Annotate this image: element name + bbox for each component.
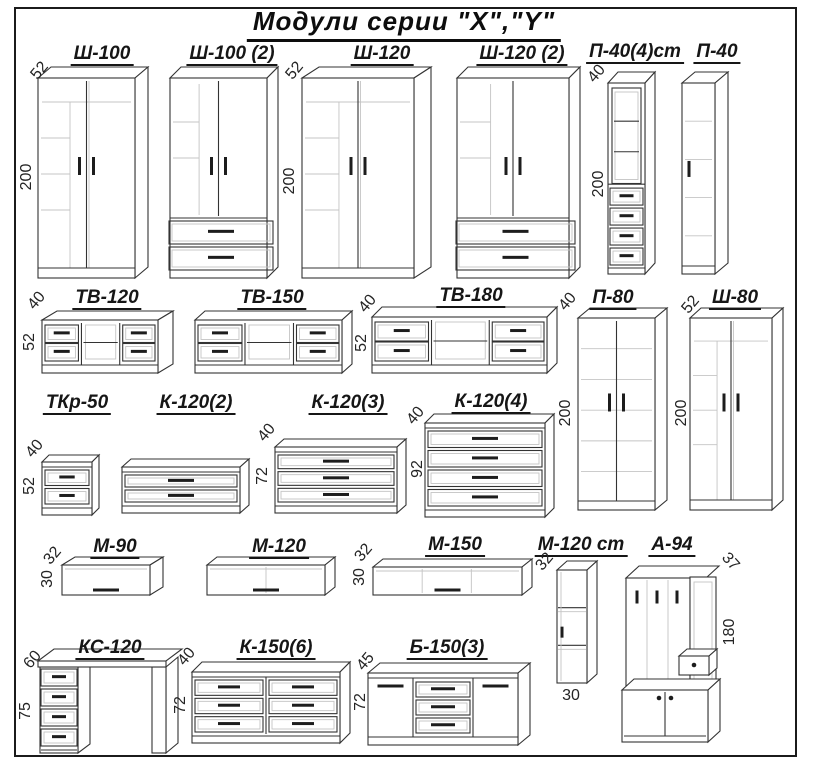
module-label-k-150-6: К-150(6) bbox=[237, 638, 316, 660]
drawing-k-150-6 bbox=[192, 662, 350, 743]
module-label-k-120-4: К-120(4) bbox=[452, 392, 531, 414]
drawing-k-120-2 bbox=[122, 459, 249, 513]
module-label-p-80: П-80 bbox=[589, 288, 636, 310]
dim-height-k-120-4: 92 bbox=[410, 460, 426, 478]
module-label-tkr-50: ТКр-50 bbox=[43, 393, 111, 415]
drawing-sh-120 bbox=[302, 67, 431, 278]
dim-height-k-150-6: 72 bbox=[173, 696, 189, 714]
module-label-k-120-3: К-120(3) bbox=[309, 393, 388, 415]
module-label-m-120: М-120 bbox=[249, 537, 309, 559]
drawing-m-90 bbox=[62, 557, 163, 595]
dim-height-k-120-3: 72 bbox=[255, 467, 271, 485]
module-label-b-150-3: Б-150(3) bbox=[407, 638, 488, 660]
drawing-p-80 bbox=[578, 308, 667, 510]
drawing-sh-100 bbox=[38, 67, 148, 278]
dim-height-tv-180: 52 bbox=[354, 334, 370, 352]
drawing-tv-180 bbox=[372, 307, 557, 373]
dim-height-m-90: 30 bbox=[40, 570, 56, 588]
drawing-tv-150 bbox=[195, 311, 352, 373]
dim-height-ks-120: 75 bbox=[18, 702, 34, 720]
dim-height-sh-100: 200 bbox=[19, 164, 35, 191]
dim-height-sh-120: 200 bbox=[282, 168, 298, 195]
module-label-tv-180: ТВ-180 bbox=[436, 286, 505, 308]
drawing-m-120-st bbox=[557, 561, 597, 683]
drawing-m-120 bbox=[207, 557, 335, 595]
module-label-sh-120: Ш-120 bbox=[351, 44, 414, 66]
drawing-tv-120 bbox=[42, 311, 173, 373]
dim-height-p-80: 200 bbox=[558, 400, 574, 427]
module-label-tv-120: ТВ-120 bbox=[72, 288, 141, 310]
module-label-k-120-2: К-120(2) bbox=[157, 393, 236, 415]
furniture-catalog: Ш-10052200Ш-100 (2)Ш-12052200Ш-120 (2)П-… bbox=[0, 0, 818, 768]
module-label-m-150: М-150 bbox=[425, 535, 485, 557]
drawing-sh-120-2 bbox=[456, 67, 580, 278]
dim-height-a-94: 180 bbox=[722, 619, 738, 646]
module-label-ks-120: КС-120 bbox=[75, 638, 144, 660]
drawing-ks-120 bbox=[38, 649, 182, 753]
drawing-p-40 bbox=[682, 72, 728, 274]
dim-height-p-40-4st: 200 bbox=[591, 171, 607, 198]
module-label-p-40: П-40 bbox=[693, 42, 740, 64]
module-label-tv-150: ТВ-150 bbox=[237, 288, 306, 310]
dim-height-tv-120: 52 bbox=[22, 333, 38, 351]
dim-height-b-150-3: 72 bbox=[353, 693, 369, 711]
dim-height-tkr-50: 52 bbox=[22, 477, 38, 495]
module-label-a-94: А-94 bbox=[648, 535, 695, 557]
dim-width-m-120-st: 30 bbox=[562, 688, 580, 704]
module-label-p-40-4st: П-40(4)ст bbox=[586, 42, 684, 64]
drawing-sh-100-2 bbox=[169, 67, 278, 278]
drawing-m-150 bbox=[373, 559, 532, 595]
module-label-sh-100: Ш-100 bbox=[71, 44, 134, 66]
module-label-sh-120-2: Ш-120 (2) bbox=[476, 44, 567, 66]
module-label-m-90: М-90 bbox=[90, 537, 139, 559]
drawing-k-120-4 bbox=[425, 414, 554, 517]
drawing-tkr-50 bbox=[42, 455, 99, 515]
dim-height-m-150: 30 bbox=[352, 568, 368, 586]
dim-height-sh-80: 200 bbox=[674, 400, 690, 427]
module-label-sh-100-2: Ш-100 (2) bbox=[186, 44, 277, 66]
page-title: Модули серии "X","Y" bbox=[247, 6, 561, 42]
drawing-k-120-3 bbox=[275, 439, 406, 513]
drawing-a-94 bbox=[622, 566, 720, 742]
drawing-sh-80 bbox=[690, 308, 783, 510]
drawing-p-40-4st bbox=[608, 72, 655, 274]
module-label-sh-80: Ш-80 bbox=[709, 288, 761, 310]
drawing-b-150-3 bbox=[368, 663, 530, 745]
